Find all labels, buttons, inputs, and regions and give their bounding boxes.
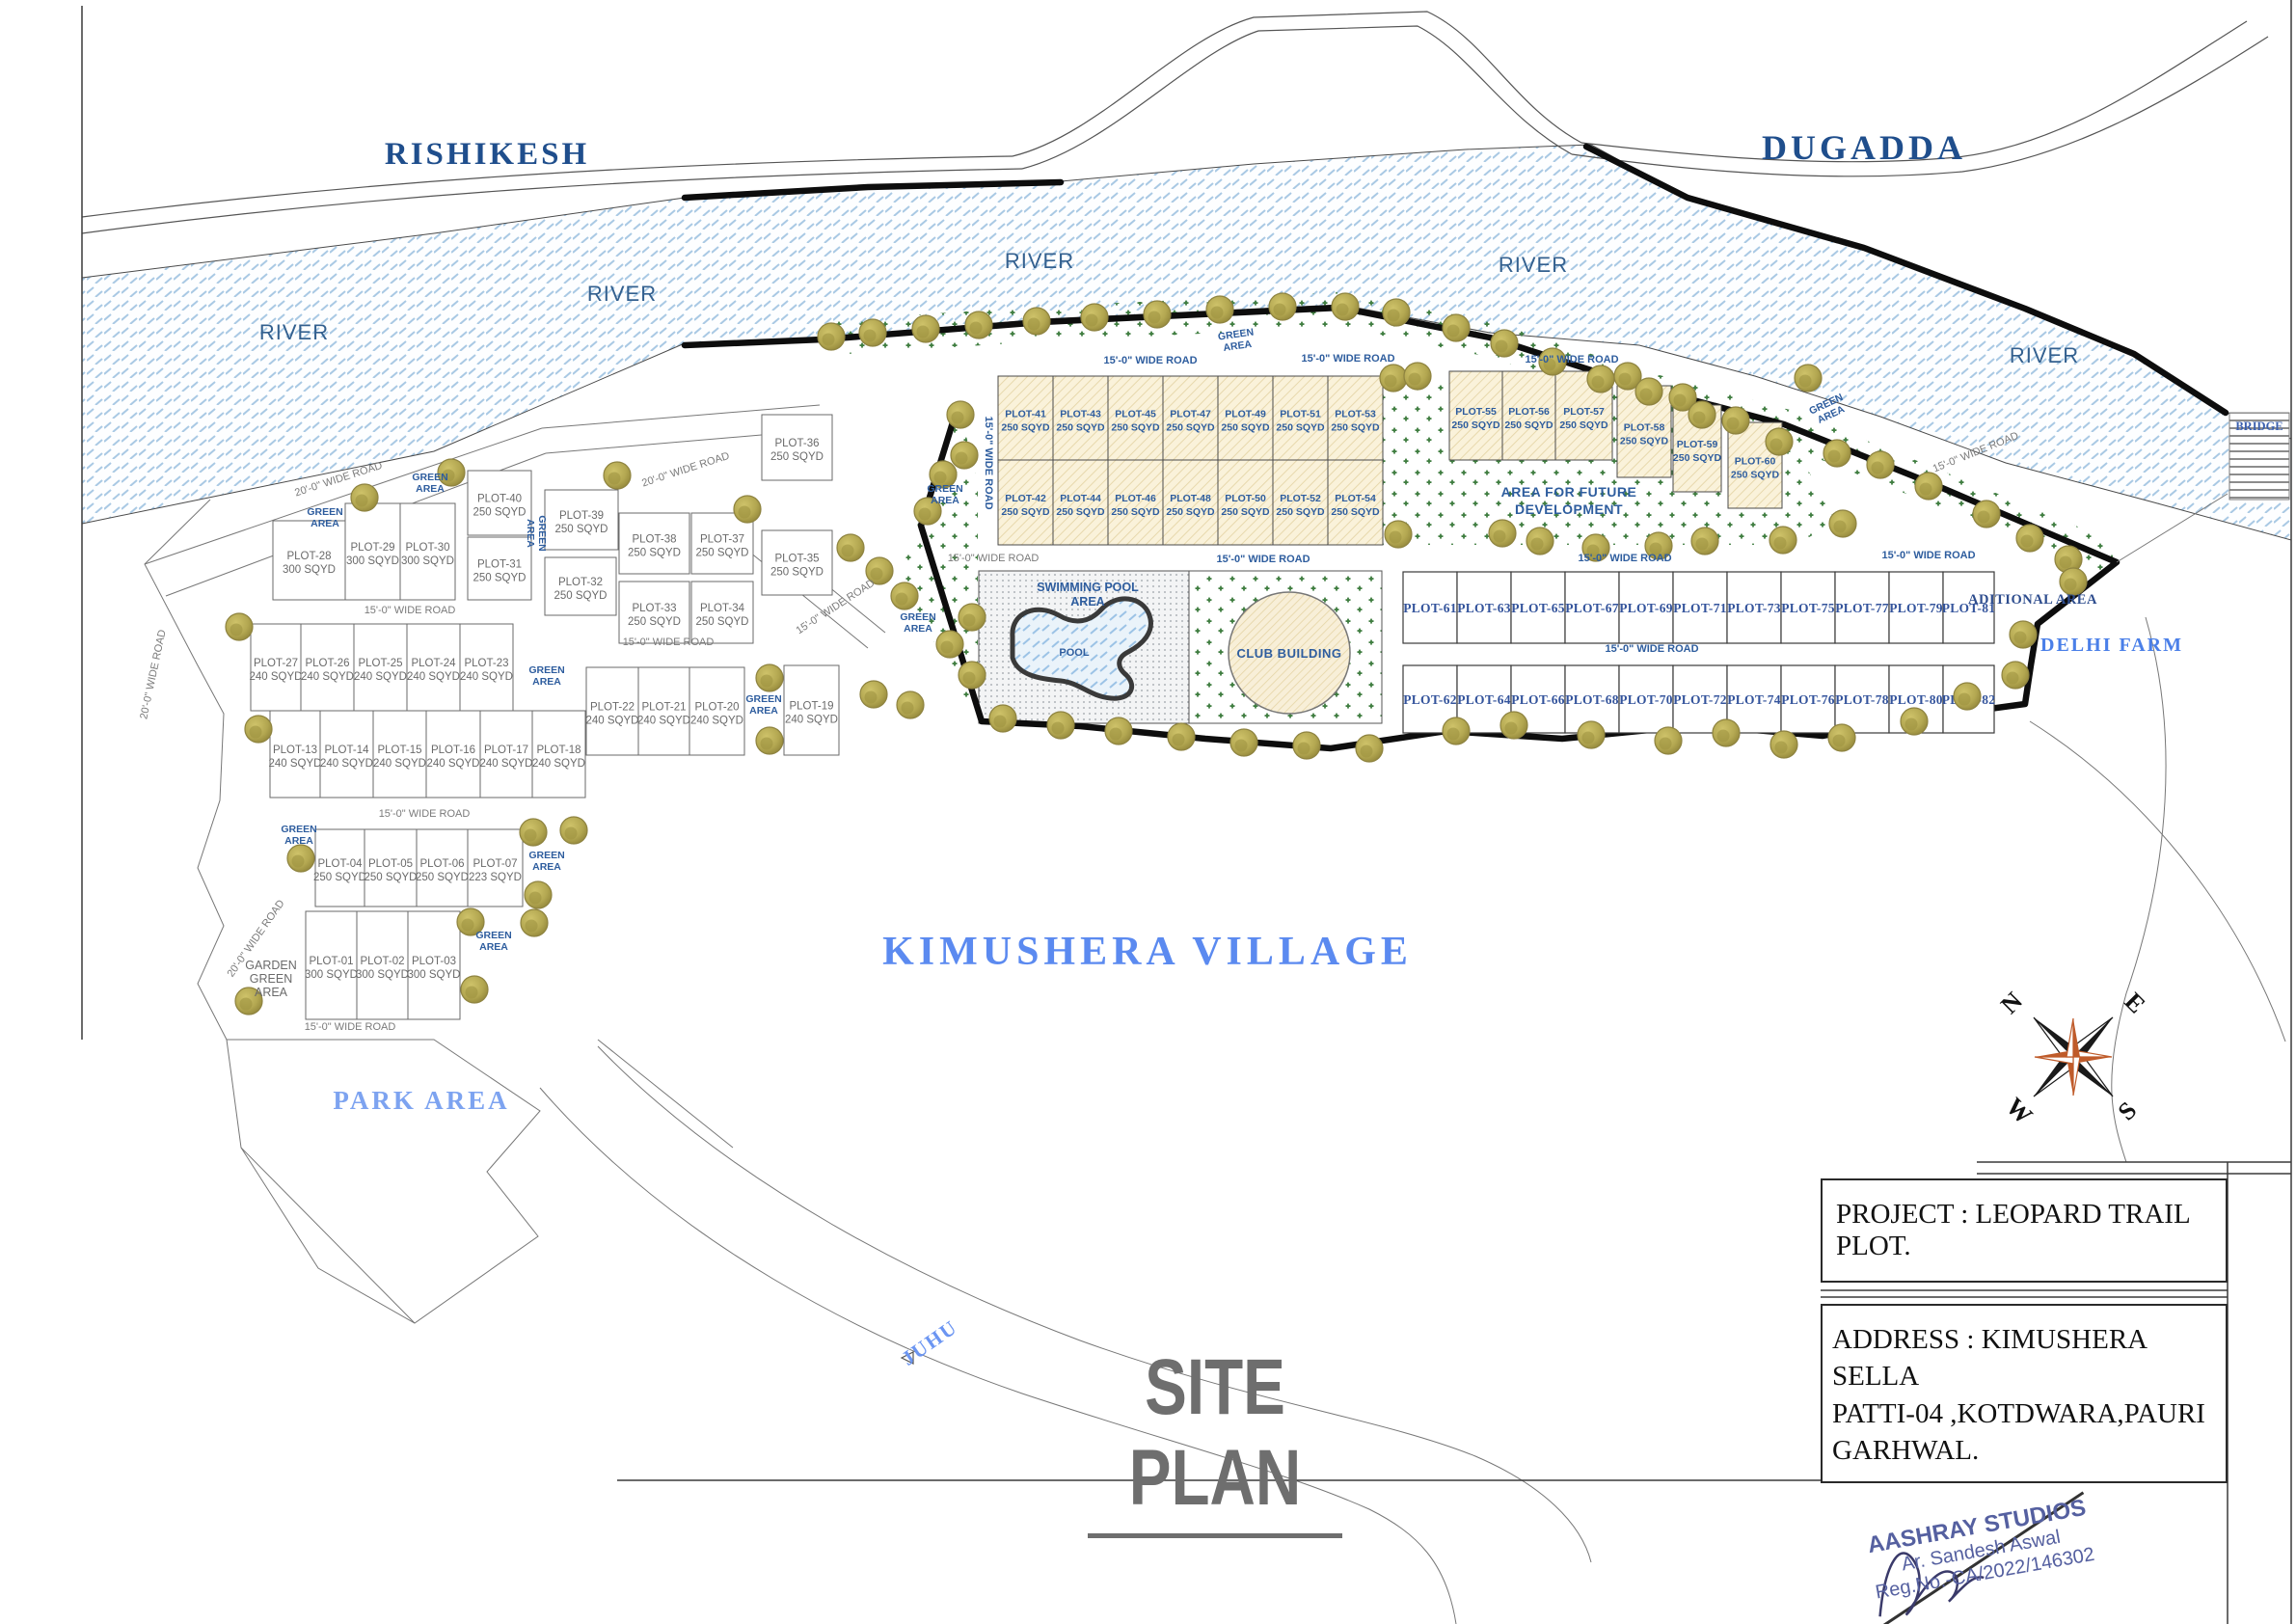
svg-text:300 SQYD: 300 SQYD <box>356 969 409 981</box>
tree <box>1144 301 1171 328</box>
svg-text:PLOT-24: PLOT-24 <box>411 658 456 669</box>
tree <box>1500 712 1527 739</box>
tree <box>1823 440 1850 467</box>
plot-34: PLOT-34250 SQYD <box>691 582 753 643</box>
svg-text:PLOT-16: PLOT-16 <box>431 744 475 756</box>
tree <box>604 462 631 489</box>
plot-67: PLOT-67 <box>1565 572 1619 643</box>
plot-02: PLOT-02300 SQYD <box>356 911 409 1019</box>
kimushera-village-label: KIMUSHERA VILLAGE <box>882 930 1413 974</box>
tree <box>1168 723 1195 750</box>
tree <box>226 613 253 640</box>
svg-text:PLOT-23: PLOT-23 <box>464 658 508 669</box>
svg-text:240 SQYD: 240 SQYD <box>407 671 460 683</box>
svg-text:250 SQYD: 250 SQYD <box>416 872 469 883</box>
river-label: RIVER <box>587 282 657 306</box>
svg-text:240 SQYD: 240 SQYD <box>480 758 533 770</box>
tree <box>1356 735 1383 762</box>
tree <box>959 604 986 631</box>
svg-text:PLOT-40: PLOT-40 <box>477 494 522 505</box>
svg-text:PLOT-52: PLOT-52 <box>1280 493 1321 504</box>
svg-text:240 SQYD: 240 SQYD <box>427 758 480 770</box>
tree <box>1047 712 1074 739</box>
plot-32: PLOT-32250 SQYD <box>545 557 616 615</box>
plot-26: PLOT-26240 SQYD <box>301 624 354 711</box>
tree <box>1691 528 1718 555</box>
svg-text:250 SQYD: 250 SQYD <box>628 548 681 559</box>
plot-06: PLOT-06250 SQYD <box>416 829 469 907</box>
tree <box>1230 729 1257 756</box>
svg-text:PLOT-35: PLOT-35 <box>774 554 819 565</box>
svg-text:250 SQYD: 250 SQYD <box>1111 422 1160 434</box>
svg-text:PLOT-14: PLOT-14 <box>324 744 369 756</box>
svg-text:PLOT-48: PLOT-48 <box>1170 493 1211 504</box>
tree <box>1269 293 1296 320</box>
svg-text:250 SQYD: 250 SQYD <box>1331 506 1380 518</box>
tree <box>1385 521 1412 548</box>
svg-text:250 SQYD: 250 SQYD <box>1276 422 1325 434</box>
svg-text:240 SQYD: 240 SQYD <box>373 758 426 770</box>
svg-text:PLOT-44: PLOT-44 <box>1060 493 1101 504</box>
compass-rose: N E S W <box>1994 978 2152 1136</box>
tree <box>1722 407 1749 434</box>
tree <box>1867 451 1894 478</box>
svg-text:PLOT-51: PLOT-51 <box>1280 409 1321 420</box>
svg-text:250 SQYD: 250 SQYD <box>473 573 527 584</box>
svg-text:250 SQYD: 250 SQYD <box>313 872 366 883</box>
tree <box>1206 296 1233 323</box>
river-label: RIVER <box>1499 253 1568 277</box>
tree <box>1443 314 1470 341</box>
svg-text:250 SQYD: 250 SQYD <box>554 590 608 602</box>
plot-19: PLOT-19240 SQYD <box>784 665 839 755</box>
svg-text:250 SQYD: 250 SQYD <box>1111 506 1160 518</box>
svg-text:PLOT-53: PLOT-53 <box>1335 409 1376 420</box>
plot-29: PLOT-29300 SQYD <box>345 503 400 600</box>
tree <box>1293 732 1320 759</box>
plot-18: PLOT-18240 SQYD <box>532 711 585 798</box>
tree <box>1526 528 1553 555</box>
plot-77: PLOT-77 <box>1835 572 1889 643</box>
road-width-label: 15'-0" WIDE ROAD <box>1525 354 1618 365</box>
plot-78: PLOT-78 <box>1835 665 1889 733</box>
plot-49: PLOT-49250 SQYD <box>1218 376 1273 460</box>
svg-text:PLOT-29: PLOT-29 <box>350 542 394 554</box>
tree <box>959 662 986 689</box>
svg-text:PLOT-77: PLOT-77 <box>1835 601 1889 615</box>
tree <box>521 909 548 936</box>
svg-text:250 SQYD: 250 SQYD <box>1504 420 1553 431</box>
plot-21: PLOT-21240 SQYD <box>637 667 690 755</box>
plot-63: PLOT-63 <box>1457 572 1511 643</box>
tree <box>1713 719 1740 746</box>
future-development-label-line1: AREA FOR FUTURE <box>1501 484 1637 500</box>
bridge-label: BRIDGE <box>2235 420 2282 433</box>
svg-text:PLOT-79: PLOT-79 <box>1889 601 1943 615</box>
svg-text:250 SQYD: 250 SQYD <box>1731 470 1780 481</box>
svg-text:PLOT-36: PLOT-36 <box>774 438 819 449</box>
plot-71: PLOT-71 <box>1673 572 1727 643</box>
tree <box>756 664 783 691</box>
plot-36: PLOT-36250 SQYD <box>762 415 832 480</box>
svg-text:PLOT-73: PLOT-73 <box>1727 601 1781 615</box>
plot-17: PLOT-17240 SQYD <box>480 711 533 798</box>
svg-text:240 SQYD: 240 SQYD <box>785 715 838 726</box>
plot-39: PLOT-39250 SQYD <box>545 490 618 550</box>
svg-text:250 SQYD: 250 SQYD <box>1276 506 1325 518</box>
tree <box>2010 621 2037 648</box>
svg-text:PLOT-55: PLOT-55 <box>1455 406 1497 418</box>
plot-81: PLOT-81 <box>1942 572 1996 643</box>
svg-text:PLOT-20: PLOT-20 <box>694 702 739 714</box>
svg-text:PLOT-63: PLOT-63 <box>1457 601 1511 615</box>
svg-text:PLOT-50: PLOT-50 <box>1225 493 1266 504</box>
tree <box>1443 717 1470 744</box>
plot-33: PLOT-33250 SQYD <box>619 582 689 643</box>
svg-text:PLOT-19: PLOT-19 <box>789 701 833 713</box>
svg-text:240 SQYD: 240 SQYD <box>637 716 690 727</box>
svg-text:PLOT-28: PLOT-28 <box>286 551 331 562</box>
plot-50: PLOT-50250 SQYD <box>1218 460 1273 545</box>
plot-13: PLOT-13240 SQYD <box>269 711 322 798</box>
plot-40: PLOT-40250 SQYD <box>468 471 531 535</box>
juhu-label: JUHU <box>897 1315 961 1370</box>
road-width-label: 20'-0" WIDE ROAD <box>138 629 168 720</box>
plot-07: PLOT-07223 SQYD <box>468 829 523 907</box>
plot-28: PLOT-28300 SQYD <box>273 521 345 600</box>
svg-text:PLOT-69: PLOT-69 <box>1619 601 1673 615</box>
river-label: RIVER <box>259 320 329 344</box>
project-title-block: PROJECT : LEOPARD TRAIL PLOT. <box>1821 1178 2228 1283</box>
address-line-2: PATTI-04 ,KOTDWARA,PAURI <box>1832 1395 2220 1432</box>
green-area-label: GREENAREA <box>900 611 935 635</box>
plot-20: PLOT-20240 SQYD <box>689 667 744 755</box>
plot-76: PLOT-76 <box>1781 665 1835 733</box>
road-width-label: 15'-0" WIDE ROAD <box>1216 554 1310 565</box>
future-development-label-line2: DEVELOPMENT <box>1515 501 1623 517</box>
plot-44: PLOT-44250 SQYD <box>1053 460 1108 545</box>
rishikesh-label: RISHIKESH <box>385 137 589 172</box>
plot-69: PLOT-69 <box>1619 572 1673 643</box>
svg-text:PLOT-37: PLOT-37 <box>700 534 744 546</box>
road-width-label: 15'-0" WIDE ROAD <box>1103 355 1197 366</box>
river-label: RIVER <box>1005 249 1074 273</box>
plot-65: PLOT-65 <box>1511 572 1565 643</box>
green-area-label: GREENAREA <box>927 483 962 506</box>
svg-text:250 SQYD: 250 SQYD <box>1331 422 1380 434</box>
swimming-pool-area-label-line1: SWIMMING POOL <box>1037 581 1139 594</box>
svg-text:250 SQYD: 250 SQYD <box>1620 436 1669 447</box>
svg-text:PLOT-57: PLOT-57 <box>1563 406 1605 418</box>
svg-text:250 SQYD: 250 SQYD <box>1001 506 1050 518</box>
svg-text:PLOT-32: PLOT-32 <box>558 577 603 588</box>
tree <box>1766 428 1793 455</box>
svg-text:PLOT-18: PLOT-18 <box>536 744 581 756</box>
plot-05: PLOT-05250 SQYD <box>365 829 418 907</box>
plot-73: PLOT-73 <box>1727 572 1781 643</box>
tree <box>525 881 552 908</box>
site-plan-title: SITE PLAN <box>1088 1342 1342 1538</box>
pool-label: POOL <box>1059 647 1089 659</box>
tree <box>951 442 978 469</box>
address-line-1: ADDRESS : KIMUSHERA SELLA <box>1832 1321 2220 1395</box>
plot-15: PLOT-15240 SQYD <box>373 711 426 798</box>
green-area-label: GREENAREA <box>528 664 564 688</box>
road-width-label: 15'-0" WIDE ROAD <box>948 553 1040 564</box>
additional-area-label: ADITIONAL AREA <box>1968 592 2097 608</box>
plot-75: PLOT-75 <box>1781 572 1835 643</box>
plot-25: PLOT-25240 SQYD <box>354 624 407 711</box>
svg-text:PLOT-31: PLOT-31 <box>477 559 522 571</box>
svg-text:PLOT-43: PLOT-43 <box>1060 409 1101 420</box>
svg-text:300 SQYD: 300 SQYD <box>408 969 461 981</box>
svg-text:250 SQYD: 250 SQYD <box>1559 420 1608 431</box>
tree <box>560 817 587 844</box>
compass-s: S <box>2113 1096 2143 1126</box>
club-building-label: CLUB BUILDING <box>1236 646 1341 661</box>
svg-text:PLOT-72: PLOT-72 <box>1673 692 1727 707</box>
plot-35: PLOT-35250 SQYD <box>762 530 832 595</box>
svg-text:250 SQYD: 250 SQYD <box>1221 422 1270 434</box>
tree <box>1688 401 1715 428</box>
svg-text:250 SQYD: 250 SQYD <box>1451 420 1500 431</box>
road-width-label: 15'-0" WIDE ROAD <box>1578 553 1671 564</box>
park-area-label: PARK AREA <box>333 1086 509 1115</box>
svg-text:PLOT-33: PLOT-33 <box>632 603 676 614</box>
compass-e: E <box>2120 988 2151 1019</box>
svg-text:PLOT-47: PLOT-47 <box>1170 409 1211 420</box>
svg-text:PLOT-78: PLOT-78 <box>1835 692 1889 707</box>
svg-text:PLOT-60: PLOT-60 <box>1735 456 1776 468</box>
svg-text:PLOT-22: PLOT-22 <box>590 702 635 714</box>
svg-text:PLOT-07: PLOT-07 <box>473 858 517 870</box>
tree <box>2060 568 2087 595</box>
svg-text:PLOT-03: PLOT-03 <box>412 956 456 967</box>
delhi-farm-label: DELHI FARM <box>2040 635 2183 656</box>
compass-w: W <box>2001 1093 2039 1130</box>
svg-text:300 SQYD: 300 SQYD <box>346 555 399 567</box>
plot-45: PLOT-45250 SQYD <box>1108 376 1163 460</box>
svg-text:250 SQYD: 250 SQYD <box>1166 422 1215 434</box>
tree <box>1829 510 1856 537</box>
svg-text:PLOT-21: PLOT-21 <box>641 702 686 714</box>
tree <box>891 582 918 609</box>
svg-text:PLOT-66: PLOT-66 <box>1511 692 1565 707</box>
tree <box>1105 717 1132 744</box>
tree <box>1023 308 1050 335</box>
tree <box>1491 330 1518 357</box>
plot-61: PLOT-61 <box>1403 572 1457 643</box>
svg-text:PLOT-76: PLOT-76 <box>1781 692 1835 707</box>
svg-text:PLOT-71: PLOT-71 <box>1673 601 1727 615</box>
svg-text:250 SQYD: 250 SQYD <box>770 451 824 463</box>
svg-text:PLOT-67: PLOT-67 <box>1565 601 1619 615</box>
address-line-3: GARHWAL. <box>1832 1432 2220 1469</box>
svg-text:PLOT-27: PLOT-27 <box>254 658 298 669</box>
plot-16: PLOT-16240 SQYD <box>426 711 480 798</box>
tree <box>965 311 992 338</box>
tree <box>1655 727 1682 754</box>
svg-text:PLOT-45: PLOT-45 <box>1115 409 1156 420</box>
svg-text:240 SQYD: 240 SQYD <box>460 671 513 683</box>
tree <box>837 534 864 561</box>
svg-text:240 SQYD: 240 SQYD <box>269 758 322 770</box>
svg-text:PLOT-75: PLOT-75 <box>1781 601 1835 615</box>
plot-48: PLOT-48250 SQYD <box>1163 460 1218 545</box>
tree <box>1578 721 1605 748</box>
svg-text:PLOT-01: PLOT-01 <box>309 956 353 967</box>
svg-text:PLOT-59: PLOT-59 <box>1677 439 1718 450</box>
svg-text:PLOT-15: PLOT-15 <box>377 744 421 756</box>
green-area-label: GREENAREA <box>281 824 316 847</box>
plot-42: PLOT-42250 SQYD <box>998 460 1053 545</box>
tree <box>947 401 974 428</box>
svg-text:PLOT-65: PLOT-65 <box>1511 601 1565 615</box>
tree <box>520 819 547 846</box>
tree <box>1081 304 1108 331</box>
svg-text:PLOT-68: PLOT-68 <box>1565 692 1619 707</box>
tree <box>1973 501 2000 528</box>
tree <box>912 315 939 342</box>
tree <box>1380 365 1407 392</box>
bridge: BRIDGE <box>2229 413 2289 500</box>
tree <box>1954 683 1981 710</box>
svg-text:223 SQYD: 223 SQYD <box>469 872 522 883</box>
svg-text:PLOT-34: PLOT-34 <box>700 603 745 614</box>
svg-text:240 SQYD: 240 SQYD <box>586 716 639 727</box>
tree <box>1635 378 1662 405</box>
tree <box>734 496 761 523</box>
tree <box>1383 299 1410 326</box>
plot-52: PLOT-52250 SQYD <box>1273 460 1328 545</box>
svg-text:PLOT-30: PLOT-30 <box>405 542 449 554</box>
svg-text:PLOT-58: PLOT-58 <box>1624 422 1665 434</box>
svg-text:PLOT-04: PLOT-04 <box>317 858 363 870</box>
svg-text:250 SQYD: 250 SQYD <box>1001 422 1050 434</box>
tree <box>1587 365 1614 392</box>
swimming-pool-area-label-line2: AREA <box>1070 595 1104 609</box>
tree <box>859 319 886 346</box>
road-width-label: 15'-0" WIDE ROAD <box>1881 550 1975 561</box>
tree <box>1901 708 1928 735</box>
plot-79: PLOT-79 <box>1889 572 1943 643</box>
green-area-label: GREENAREA <box>1217 326 1256 354</box>
road-width-label: 20'-0" WIDE ROAD <box>640 450 731 490</box>
compass-n: N <box>1995 987 2028 1019</box>
plot-38: PLOT-38250 SQYD <box>619 513 689 574</box>
svg-text:250 SQYD: 250 SQYD <box>1221 506 1270 518</box>
svg-text:PLOT-41: PLOT-41 <box>1005 409 1046 420</box>
svg-text:PLOT-64: PLOT-64 <box>1457 692 1511 707</box>
svg-text:PLOT-02: PLOT-02 <box>360 956 404 967</box>
plot-01: PLOT-01300 SQYD <box>305 911 358 1019</box>
tree <box>1770 731 1797 758</box>
address-title-block: ADDRESS : KIMUSHERA SELLA PATTI-04 ,KOTD… <box>1821 1304 2228 1483</box>
road-width-label: 15'-0" WIDE ROAD <box>1605 643 1698 655</box>
svg-text:PLOT-38: PLOT-38 <box>632 534 676 546</box>
site-plan-sheet: BRIDGE PLOT-41250 SQYDPLOT-43250 SQYDPLO… <box>0 0 2296 1624</box>
plot-04: PLOT-04250 SQYD <box>313 829 366 907</box>
svg-text:300 SQYD: 300 SQYD <box>283 564 336 576</box>
green-area-label: GREENAREA <box>412 472 447 495</box>
road-width-label: 15'-0" WIDE ROAD <box>305 1021 396 1033</box>
plot-53: PLOT-53250 SQYD <box>1328 376 1383 460</box>
green-area-label: GREENAREA <box>525 515 548 551</box>
svg-text:300 SQYD: 300 SQYD <box>401 555 454 567</box>
plot-03: PLOT-03300 SQYD <box>408 911 461 1019</box>
plot-43: PLOT-43250 SQYD <box>1053 376 1108 460</box>
svg-text:PLOT-74: PLOT-74 <box>1727 692 1781 707</box>
green-area-label: GREENAREA <box>745 693 781 717</box>
river-label: RIVER <box>2010 343 2079 367</box>
plot-51: PLOT-51250 SQYD <box>1273 376 1328 460</box>
plot-24: PLOT-24240 SQYD <box>407 624 460 711</box>
tree <box>245 716 272 743</box>
svg-text:250 SQYD: 250 SQYD <box>1166 506 1215 518</box>
svg-text:PLOT-46: PLOT-46 <box>1115 493 1156 504</box>
svg-text:250 SQYD: 250 SQYD <box>1673 452 1722 464</box>
tree <box>1769 527 1796 554</box>
road-width-label: 15'-0" WIDE ROAD <box>983 416 994 509</box>
svg-text:PLOT-70: PLOT-70 <box>1619 692 1673 707</box>
tree <box>1332 293 1359 320</box>
tree <box>287 845 314 872</box>
plot-14: PLOT-14240 SQYD <box>320 711 373 798</box>
svg-text:PLOT-42: PLOT-42 <box>1005 493 1046 504</box>
plot-22: PLOT-22240 SQYD <box>586 667 639 755</box>
tree <box>936 631 963 658</box>
signature-stamp: AASHRAY STUDIOS Ar. Sandesh Aswal Reg.No… <box>1855 1493 2101 1624</box>
road-width-label: 15'-0" WIDE ROAD <box>379 808 471 820</box>
tree <box>2016 525 2043 552</box>
tree <box>351 484 378 511</box>
svg-text:250 SQYD: 250 SQYD <box>696 548 749 559</box>
svg-text:PLOT-13: PLOT-13 <box>273 744 317 756</box>
svg-text:PLOT-49: PLOT-49 <box>1225 409 1266 420</box>
green-area-label: GREENAREA <box>307 506 342 529</box>
plot-23: PLOT-23240 SQYD <box>460 624 513 711</box>
svg-text:240 SQYD: 240 SQYD <box>250 671 303 683</box>
svg-text:PLOT-62: PLOT-62 <box>1403 692 1457 707</box>
tree <box>1404 363 1431 390</box>
tree <box>1795 365 1822 392</box>
svg-text:PLOT-39: PLOT-39 <box>559 510 604 522</box>
svg-text:PLOT-05: PLOT-05 <box>368 858 413 870</box>
svg-text:PLOT-56: PLOT-56 <box>1508 406 1550 418</box>
svg-text:PLOT-80: PLOT-80 <box>1889 692 1943 707</box>
road-width-label: 15'-0" WIDE ROAD <box>623 636 715 648</box>
svg-text:240 SQYD: 240 SQYD <box>690 716 743 727</box>
svg-text:PLOT-17: PLOT-17 <box>484 744 528 756</box>
tree <box>818 323 845 350</box>
svg-text:PLOT-06: PLOT-06 <box>419 858 464 870</box>
plot-56: PLOT-56250 SQYD <box>1502 371 1555 460</box>
svg-text:250 SQYD: 250 SQYD <box>365 872 418 883</box>
tree <box>1828 724 1855 751</box>
svg-text:240 SQYD: 240 SQYD <box>301 671 354 683</box>
svg-text:PLOT-25: PLOT-25 <box>358 658 402 669</box>
svg-text:240 SQYD: 240 SQYD <box>354 671 407 683</box>
plot-41: PLOT-41250 SQYD <box>998 376 1053 460</box>
svg-text:250 SQYD: 250 SQYD <box>696 616 749 628</box>
project-text: PROJECT : LEOPARD TRAIL PLOT. <box>1836 1199 2226 1262</box>
svg-text:PLOT-26: PLOT-26 <box>305 658 349 669</box>
plot-70: PLOT-70 <box>1619 665 1673 733</box>
dugadda-label: DUGADDA <box>1762 128 1966 167</box>
road-width-label: 15'-0" WIDE ROAD <box>365 605 456 616</box>
plot-31: PLOT-31250 SQYD <box>468 537 531 600</box>
tree <box>989 705 1016 732</box>
